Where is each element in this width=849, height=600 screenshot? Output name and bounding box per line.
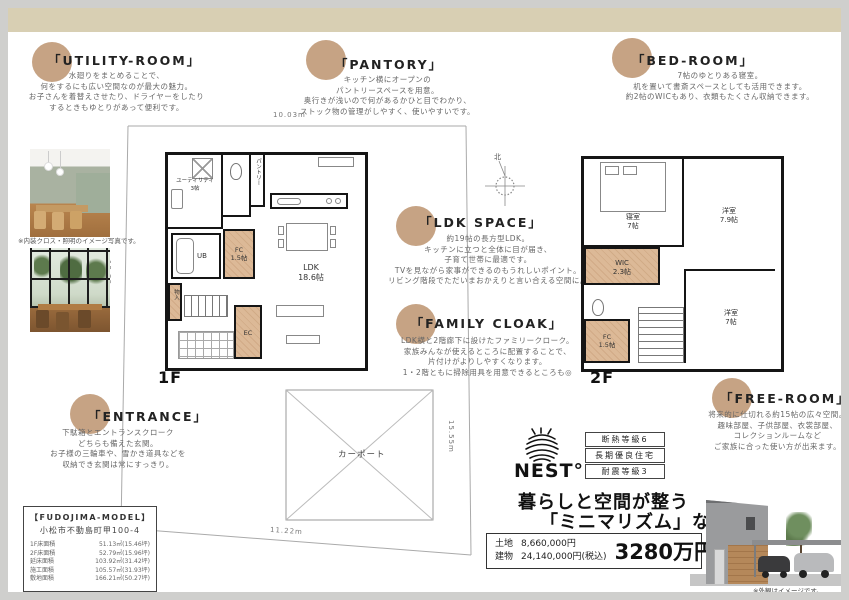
room-label: FC 1.5帖 <box>225 246 253 262</box>
price-rows: 土地8,660,000円 建物24,140,000円(税込) <box>487 536 615 566</box>
car-dark <box>758 556 790 572</box>
compass-icon <box>485 161 525 206</box>
chair <box>56 312 69 330</box>
room-western-79: 洋室 7.9帖 <box>684 159 775 271</box>
exterior-render <box>690 498 849 586</box>
nest-logo-icon <box>521 426 563 464</box>
room-label: 物入 <box>172 289 180 300</box>
model-rows: 1F床面積51.13㎡(15.46坪) 2F床面積52.79㎡(15.96坪) … <box>30 541 150 584</box>
section-title: 「PANTORY」 <box>314 54 464 73</box>
pillow <box>605 166 619 175</box>
floor-label-1f: 1F <box>158 368 182 387</box>
room-label: UB <box>197 252 207 260</box>
model-row: 施工面積105.57㎡(31.93坪) <box>30 567 150 576</box>
floor-plan-2f: 寝室 7帖 洋室 7.9帖 WIC 2.3帖 FC 1.5帖 <box>581 156 784 372</box>
interior-photo-window <box>30 248 110 332</box>
chair <box>70 211 82 229</box>
car-wheel <box>762 571 769 578</box>
floor-label-2f: 2F <box>590 368 614 387</box>
car-silver <box>794 553 834 572</box>
room-wic: WIC 2.3帖 <box>584 247 660 285</box>
dining-table <box>286 223 328 251</box>
section-title: 「FAMILY CLOAK」 <box>402 313 572 332</box>
room-ec: EC <box>234 305 262 359</box>
section-text: 下駄箱とエントランスクローク どちらも備えた玄関。 お子様の三輪車や、雪かき道具… <box>28 428 208 470</box>
model-address: 小松市不動島町甲100-4 <box>30 525 150 536</box>
flyer-page: 10.03m 12.29m 15.55m 11.22m カーポート 北 「UTI… <box>0 0 849 600</box>
price-building: 建物24,140,000円(税込) <box>495 551 607 564</box>
room-label: パントリー <box>254 158 262 186</box>
toilet-2f <box>592 299 604 316</box>
price-box: 土地8,660,000円 建物24,140,000円(税込) 3280万円 <box>486 533 702 569</box>
model-row: 2F床面積52.79㎡(15.96坪) <box>30 550 150 559</box>
room-label: EC <box>236 329 260 337</box>
model-row: 敷地面積166.21㎡(50.27坪) <box>30 575 150 584</box>
carport-post <box>754 545 756 577</box>
stove-burner <box>326 198 332 204</box>
stairs-2f <box>638 307 684 363</box>
window-frame <box>30 248 110 308</box>
chair <box>278 239 284 248</box>
model-row: 1F床面積51.13㎡(15.46坪) <box>30 541 150 550</box>
interior-photo-dining <box>30 149 110 237</box>
room-pantry: パントリー <box>251 155 265 207</box>
pendant-light <box>44 162 53 171</box>
nest-logo-text: NEST° <box>514 460 584 482</box>
dim-right: 15.55m <box>447 420 455 453</box>
chair <box>278 226 284 235</box>
badge-insulation: 断熱等級6 <box>585 432 665 447</box>
room-fc-2f: FC 1.5帖 <box>584 319 630 363</box>
car-wheel <box>780 571 787 578</box>
chair <box>52 212 64 230</box>
entry-door <box>714 549 725 586</box>
room-label-ldk: LDK 18.6帖 <box>286 263 336 283</box>
room-closet: 物入 <box>168 283 182 321</box>
cupboard <box>318 157 354 167</box>
chair <box>78 310 91 328</box>
room-bedroom: 寝室 7帖 <box>584 159 684 247</box>
section-title: 「ENTRANCE」 <box>78 406 218 425</box>
kitchen-counter <box>270 193 348 209</box>
pillow <box>623 166 637 175</box>
photo-caption: ※内装クロス・照明のイメージ写真です。 <box>18 235 140 245</box>
genkan-tiles <box>178 331 234 359</box>
tv-board <box>286 335 320 344</box>
section-text: 水廻りをまとめることで、 何をするにも広い空間なのが最大の魅力。 お子さんを着替… <box>14 71 219 113</box>
model-info-box: 【FUDOJIMA-MODEL】 小松市不動島町甲100-4 1F床面積51.1… <box>23 506 157 592</box>
room-label: 寝室 7帖 <box>610 213 656 231</box>
floor-plan-1f: ユーティリティ 3帖 パントリー LDK 18.6帖 <box>165 152 368 371</box>
badge-long-term: 長期優良住宅 <box>585 448 665 463</box>
model-row: 延床面積103.92㎡(31.42坪) <box>30 558 150 567</box>
room-western-7: 洋室 7帖 <box>684 271 775 363</box>
room-label: 洋室 7.9帖 <box>706 207 752 225</box>
washer <box>192 158 213 179</box>
model-title: 【FUDOJIMA-MODEL】 <box>30 512 150 523</box>
stairs-1f <box>184 295 228 317</box>
chair <box>36 310 49 328</box>
section-text: 約19帖の長方型LDK。 キッチンに立つと全体に目が届き、 子育て世帯に最適です… <box>383 234 593 287</box>
bathtub <box>176 238 194 274</box>
section-text: キッチン横にオープンの パントリースペースを用意。 奥行きが浅いので何があるかひ… <box>280 75 495 117</box>
carport-label: カーポート <box>338 448 386 460</box>
chair <box>34 211 46 229</box>
sofa <box>276 305 324 317</box>
chair <box>330 239 336 248</box>
section-title: 「BED-ROOM」 <box>623 50 763 69</box>
kitchen-sink <box>277 198 301 205</box>
car-wheel <box>821 570 829 578</box>
pendant-light <box>56 168 64 176</box>
section-title: 「UTILITY-ROOM」 <box>48 50 183 69</box>
exterior-caption: ※外観はイメージです。 <box>753 585 823 595</box>
chair <box>330 226 336 235</box>
section-title: 「FREE-ROOM」 <box>720 388 849 407</box>
section-title: 「LDK SPACE」 <box>406 212 556 231</box>
section-text: LDK横と2階廊下に設けたファミリークローク。 家族みんなが使えるところに配置す… <box>380 336 595 378</box>
room-label: 洋室 7帖 <box>708 309 754 327</box>
car-wheel <box>799 570 807 578</box>
room-fc-1f: FC 1.5帖 <box>223 229 255 279</box>
room-ub: UB <box>171 233 221 279</box>
stove-burner <box>335 198 341 204</box>
room-label: WIC 2.3帖 <box>586 259 658 277</box>
pendant-cord <box>60 151 61 169</box>
carport-post <box>843 545 845 577</box>
section-text: 7帖のゆとりある寝室。 机を置いて書斎スペースとしても活用できます。 約2帖のW… <box>600 71 840 103</box>
price-land: 土地8,660,000円 <box>495 538 607 551</box>
section-text: 将来的に仕切れる約15帖の広々空間。 趣味部屋、子供部屋、衣裳部屋、 コレクショ… <box>700 410 849 452</box>
north-label: 北 <box>494 152 502 162</box>
room-label: ユーティリティ 3帖 <box>169 177 221 193</box>
bed <box>600 162 666 212</box>
toilet <box>230 163 242 180</box>
badge-seismic: 耐震等級3 <box>585 464 665 479</box>
room-label: FC 1.5帖 <box>586 333 628 349</box>
room-utility: ユーティリティ 3帖 <box>168 155 223 229</box>
window <box>746 517 755 530</box>
carport-roof <box>752 540 847 545</box>
room-toilet-1f <box>223 155 251 217</box>
